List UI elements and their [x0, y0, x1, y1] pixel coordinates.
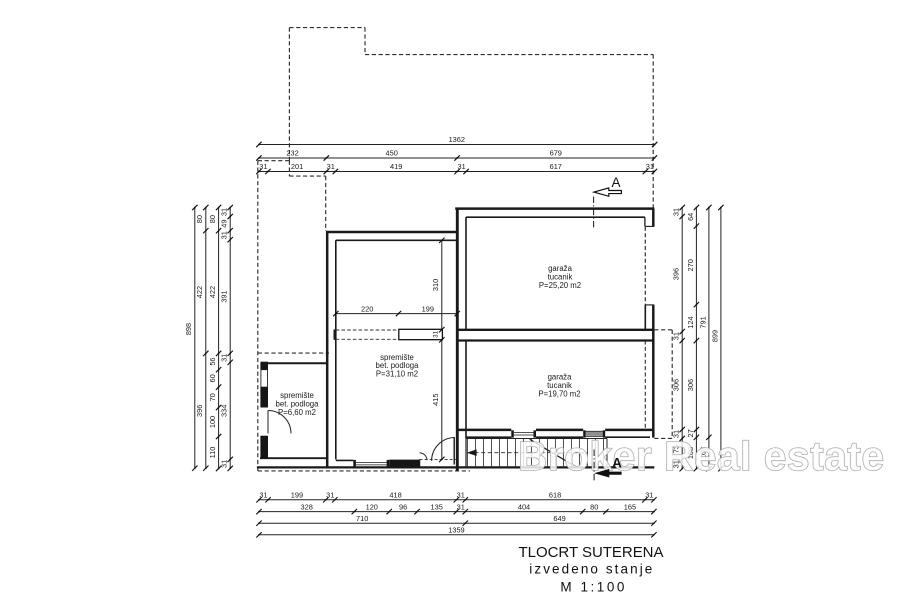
svg-text:404: 404: [518, 502, 530, 511]
svg-text:419: 419: [390, 162, 402, 171]
svg-text:391: 391: [220, 290, 229, 302]
svg-text:31: 31: [220, 354, 229, 362]
svg-text:617: 617: [550, 162, 562, 171]
svg-text:31: 31: [645, 491, 653, 500]
svg-text:80: 80: [590, 502, 598, 511]
svg-text:P=25,20 m2: P=25,20 m2: [539, 281, 581, 290]
svg-text:306: 306: [672, 379, 681, 391]
svg-text:679: 679: [550, 149, 562, 158]
svg-text:P=19,70 m2: P=19,70 m2: [538, 390, 580, 399]
svg-text:791: 791: [698, 316, 707, 328]
svg-text:306: 306: [686, 379, 695, 391]
svg-text:124: 124: [686, 316, 695, 328]
svg-text:31: 31: [646, 162, 654, 171]
svg-text:31: 31: [259, 491, 267, 500]
svg-text:31: 31: [672, 208, 681, 216]
svg-text:310: 310: [431, 279, 440, 291]
svg-text:70: 70: [208, 393, 217, 401]
svg-text:A: A: [612, 455, 622, 470]
svg-text:64: 64: [686, 213, 695, 221]
svg-text:450: 450: [386, 149, 398, 158]
svg-text:1359: 1359: [448, 526, 464, 535]
svg-text:80: 80: [208, 215, 217, 223]
svg-text:31: 31: [457, 502, 465, 511]
svg-text:618: 618: [549, 491, 561, 500]
svg-text:110: 110: [208, 447, 217, 459]
svg-text:220: 220: [361, 304, 373, 313]
svg-text:31: 31: [433, 330, 440, 337]
svg-text:31: 31: [327, 162, 335, 171]
svg-text:201: 201: [291, 162, 303, 171]
svg-text:izvedeno stanje: izvedeno stanje: [529, 562, 652, 577]
svg-text:270: 270: [686, 259, 695, 271]
svg-text:199: 199: [291, 491, 303, 500]
svg-text:96: 96: [399, 502, 407, 511]
svg-text:100: 100: [208, 416, 217, 428]
svg-text:232: 232: [286, 149, 298, 158]
svg-text:80: 80: [195, 215, 204, 223]
svg-text:120: 120: [366, 502, 378, 511]
svg-text:396: 396: [195, 405, 204, 417]
svg-text:49: 49: [220, 219, 229, 227]
svg-text:A: A: [611, 175, 620, 190]
svg-text:1362: 1362: [449, 135, 465, 144]
svg-text:422: 422: [208, 286, 217, 298]
svg-text:135: 135: [431, 502, 443, 511]
svg-text:31: 31: [457, 491, 465, 500]
svg-text:649: 649: [553, 514, 565, 523]
svg-text:60: 60: [208, 374, 217, 382]
svg-text:415: 415: [431, 393, 440, 405]
svg-text:328: 328: [300, 502, 312, 511]
svg-text:P=31,10 m2: P=31,10 m2: [376, 370, 418, 379]
svg-text:31: 31: [259, 162, 267, 171]
svg-text:31: 31: [220, 208, 229, 216]
svg-text:56: 56: [208, 357, 217, 365]
svg-text:898: 898: [184, 323, 193, 335]
svg-text:418: 418: [389, 491, 401, 500]
svg-text:334: 334: [220, 405, 229, 417]
svg-text:31: 31: [326, 491, 334, 500]
svg-text:899: 899: [710, 330, 719, 342]
svg-text:422: 422: [195, 286, 204, 298]
svg-text:31: 31: [220, 460, 229, 468]
svg-text:TLOCRT SUTERENA: TLOCRT SUTERENA: [519, 544, 664, 561]
svg-text:31: 31: [672, 332, 681, 340]
svg-text:165: 165: [624, 502, 636, 511]
svg-text:710: 710: [356, 514, 368, 523]
svg-text:199: 199: [422, 304, 434, 313]
svg-text:31: 31: [457, 162, 465, 171]
svg-text:31: 31: [220, 231, 229, 239]
svg-text:396: 396: [672, 268, 681, 280]
svg-text:P=6,60 m2: P=6,60 m2: [278, 408, 316, 417]
svg-text:Broker Real estate: Broker Real estate: [518, 433, 884, 479]
